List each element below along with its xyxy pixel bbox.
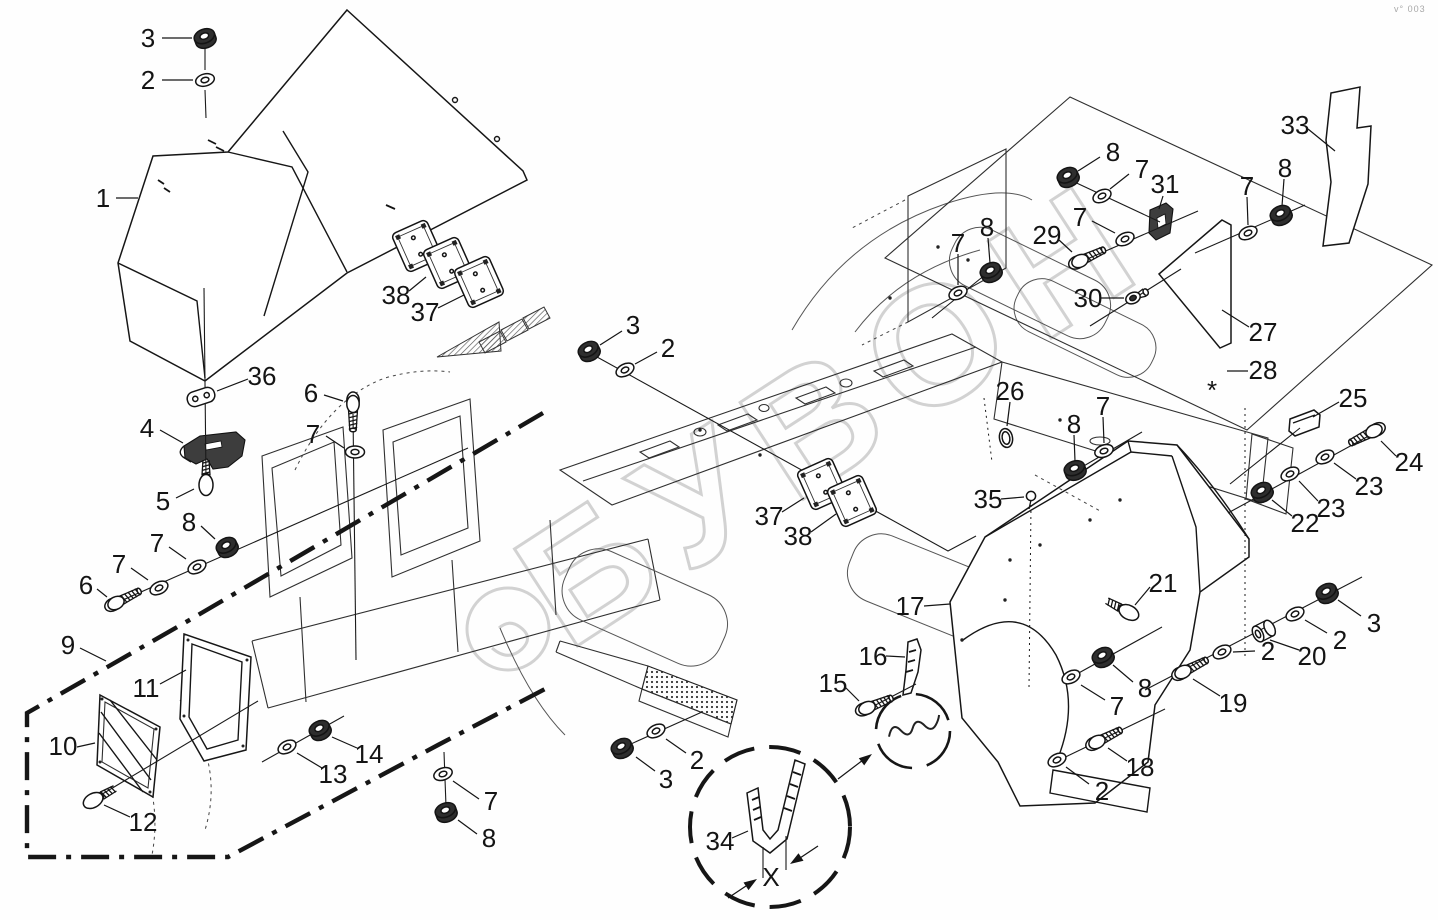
callout-leader-line <box>104 805 130 817</box>
v-bracket-part-34 <box>747 760 805 853</box>
callout-label-3: 3 <box>1367 608 1381 638</box>
callout-label-26: 26 <box>996 376 1025 406</box>
nut-fastener-icon <box>1268 202 1295 228</box>
callout-label-3: 3 <box>659 764 673 794</box>
callout-leader-line <box>131 568 148 580</box>
callout-leader-line <box>600 331 622 345</box>
bolt-fastener-icon <box>854 692 896 718</box>
nut-fastener-icon <box>1314 580 1341 606</box>
callout-label-7: 7 <box>1110 691 1124 721</box>
plate-part-25 <box>1289 410 1320 436</box>
callout-label-8: 8 <box>1278 153 1292 183</box>
callout-leader-line <box>77 743 95 747</box>
callout-label-24: 24 <box>1395 447 1424 477</box>
washer-fastener-icon <box>194 72 215 89</box>
fastener-axis-line <box>116 448 468 603</box>
nut-fastener-icon <box>576 338 603 364</box>
callout-label-8: 8 <box>1138 673 1152 703</box>
callout-label-2: 2 <box>690 745 704 775</box>
callout-label-2: 2 <box>1095 776 1109 806</box>
panel-part-33 <box>1323 87 1371 246</box>
callout-leader-line <box>1299 481 1318 501</box>
callout-leader-line <box>201 526 215 539</box>
callout-leader-line <box>169 547 186 559</box>
callout-label-28: 28 <box>1249 355 1278 385</box>
mirror-plate-10 <box>97 695 160 797</box>
callout-label-9: 9 <box>61 630 75 660</box>
callout-label-8: 8 <box>1106 137 1120 167</box>
hood-part-1 <box>118 10 527 381</box>
link-fastener-icon <box>185 386 216 409</box>
callout-label-12: 12 <box>129 807 158 837</box>
callout-label-7: 7 <box>112 549 126 579</box>
corner-mark: v° 003 <box>1394 4 1426 14</box>
callout-label-27: 27 <box>1249 317 1278 347</box>
oval-fastener-icon <box>998 428 1014 449</box>
callout-label-11: 11 <box>133 673 160 703</box>
callout-label-36: 36 <box>248 361 277 391</box>
callout-leader-line <box>1305 620 1327 633</box>
bracket-part-31 <box>1149 203 1173 240</box>
callout-label-7: 7 <box>1240 171 1254 201</box>
callout-label-5: 5 <box>156 486 170 516</box>
washer-fastener-icon <box>148 578 170 597</box>
callout-leader-line <box>1233 651 1255 652</box>
callout-label-4: 4 <box>140 413 154 443</box>
callout-leader-line <box>324 395 343 401</box>
nut-fastener-icon <box>609 735 636 761</box>
callout-label-X: X <box>762 862 779 892</box>
callout-label-8: 8 <box>1067 409 1081 439</box>
callout-label-15: 15 <box>819 668 848 698</box>
bolt-fastener-icon <box>1346 420 1387 449</box>
washer-fastener-icon <box>645 721 667 740</box>
callout-label-31: 31 <box>1151 169 1180 199</box>
callout-label-8: 8 <box>980 212 994 242</box>
callout-leader-line <box>326 436 344 448</box>
callout-leader-line <box>924 604 950 606</box>
nut-fastener-icon <box>433 800 459 825</box>
callout-leader-line <box>438 295 464 308</box>
parts-diagram-canvas: БУВОН <box>0 0 1438 920</box>
callout-label-2: 2 <box>1333 625 1347 655</box>
callout-leader-line <box>97 589 107 597</box>
callout-label-25: 25 <box>1339 383 1368 413</box>
callout-leader-line <box>409 277 426 291</box>
callout-leader-line <box>635 352 657 364</box>
detail-circle-spring <box>876 694 950 768</box>
callout-label-7: 7 <box>1135 154 1149 184</box>
screw-fastener-icon <box>81 782 119 811</box>
callout-leader-line <box>1247 197 1248 225</box>
callout-label-21: 21 <box>1149 568 1178 598</box>
callout-leader-line <box>1338 600 1361 616</box>
callout-label-8: 8 <box>482 823 496 853</box>
callout-label-13: 13 <box>319 759 348 789</box>
clamp-part-4 <box>180 432 245 469</box>
callout-label-17: 17 <box>896 591 925 621</box>
callout-label-8: 8 <box>182 507 196 537</box>
callout-label-7: 7 <box>150 528 164 558</box>
bolt-fastener-icon <box>102 585 143 614</box>
callout-label-2: 2 <box>141 65 155 95</box>
nut-fastener-icon <box>192 26 218 51</box>
callout-label-6: 6 <box>304 378 318 408</box>
callout-label-19: 19 <box>1219 688 1248 718</box>
callout-label-3: 3 <box>141 23 155 53</box>
callout-leader-line <box>453 781 479 799</box>
callout-label-34: 34 <box>706 826 735 856</box>
washer-fastener-icon <box>346 446 365 458</box>
fastener-axis-line <box>205 90 206 118</box>
callout-leader-line <box>160 430 183 443</box>
callout-label-16: 16 <box>859 641 888 671</box>
callout-label-7: 7 <box>951 228 965 258</box>
fastener-axis-line <box>262 716 344 762</box>
callout-label-33: 33 <box>1281 110 1310 140</box>
callout-leader-line <box>1334 463 1356 479</box>
frame-part-11 <box>180 634 251 761</box>
callout-label-2: 2 <box>661 333 675 363</box>
washer-fastener-icon <box>186 557 208 576</box>
callout-label-22: 22 <box>1291 508 1320 538</box>
callout-label-37: 37 <box>755 501 784 531</box>
parts-diagram-page: БУВОН <box>0 0 1438 920</box>
detail-link-arrowhead <box>859 754 872 765</box>
callout-label-35: 35 <box>974 484 1003 514</box>
callout-leader-line <box>1272 500 1292 516</box>
callout-leader-line <box>886 656 905 657</box>
spring-detail <box>887 715 942 740</box>
callout-label-20: 20 <box>1298 641 1327 671</box>
washer-fastener-icon <box>432 765 454 783</box>
callout-leader-line <box>80 648 106 661</box>
panel-part-27 <box>1159 220 1231 348</box>
nut-fastener-icon <box>214 534 241 560</box>
callout-label-18: 18 <box>1126 752 1155 782</box>
callout-label-7: 7 <box>306 419 320 449</box>
warning-decals <box>437 307 550 357</box>
callout-label-23: 23 <box>1355 471 1384 501</box>
washer-fastener-icon <box>1279 464 1301 483</box>
callout-leader-line <box>1282 179 1284 206</box>
nut-fastener-icon <box>307 717 334 743</box>
callout-label-29: 29 <box>1033 220 1062 250</box>
callout-label-38: 38 <box>784 521 813 551</box>
callout-leader-line <box>1001 497 1024 499</box>
callout-leader-line <box>176 489 194 498</box>
callout-leader-line <box>1110 174 1129 189</box>
callout-leader-line <box>217 379 248 391</box>
callout-label-1: 1 <box>96 183 110 213</box>
callout-label-*: * <box>1207 375 1217 405</box>
callout-leader-line <box>1193 679 1220 696</box>
callout-label-7: 7 <box>1096 391 1110 421</box>
callout-label-6: 6 <box>79 570 93 600</box>
callout-label-3: 3 <box>626 310 640 340</box>
callout-leader-line <box>332 737 357 748</box>
callout-label-7: 7 <box>1073 202 1087 232</box>
callout-leader-line <box>666 739 686 753</box>
callout-label-30: 30 <box>1074 283 1103 313</box>
callout-label-23: 23 <box>1317 493 1346 523</box>
callout-leader-line <box>458 820 477 834</box>
callout-label-14: 14 <box>355 739 384 769</box>
detail-link-arrow-line <box>838 760 863 779</box>
washer-fastener-icon <box>276 737 298 756</box>
callout-label-38: 38 <box>382 280 411 310</box>
callout-label-10: 10 <box>49 731 78 761</box>
callout-leader-line <box>636 757 655 771</box>
callout-label-37: 37 <box>411 297 440 327</box>
callout-leader-line <box>1313 402 1339 417</box>
callout-label-7: 7 <box>484 786 498 816</box>
